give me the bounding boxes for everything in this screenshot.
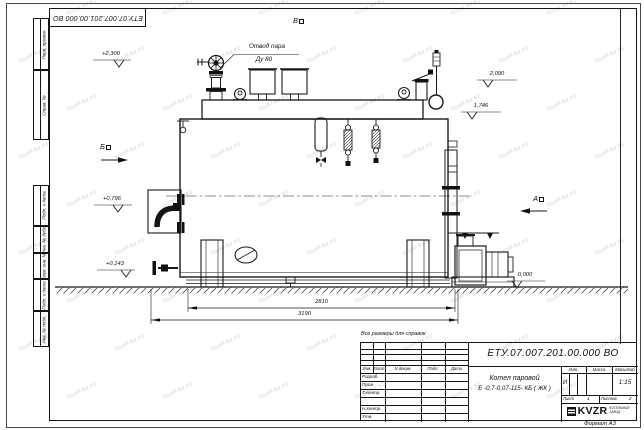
company-name: КОТЕЛЬНЫЙ ЗАВОД [609, 407, 629, 414]
sheet-label: Лист [563, 397, 574, 401]
view-mark-box-icon [299, 19, 304, 24]
col-ndoc: N докум. [385, 367, 421, 371]
view-mark-b: Б [100, 143, 111, 151]
steam-outlet-dn-label: Ду 80 [234, 57, 294, 63]
col-izm: Изм. [361, 367, 373, 371]
elevation-plus0143: +0,143 [95, 262, 135, 268]
scale-value: 1:15 [612, 380, 638, 387]
logo-text: KVZR [578, 405, 608, 417]
drawing-sheet: kotel-kv.kzkotel-kv.kzkotel-kv.kzkotel-k… [0, 0, 644, 430]
sheet-value: 1 [587, 397, 590, 402]
col-data: Дата [445, 367, 468, 371]
elevation-plus2300: +2,300 [91, 52, 131, 58]
lit-value: И [561, 380, 569, 386]
sheets-value: 2 [629, 397, 632, 402]
format-note: Формат А3 [570, 422, 630, 428]
view-mark-box-icon [539, 197, 544, 202]
product-name-line2: Е -0,7-0,07-115- КБ ( ЖК ) [468, 386, 561, 392]
view-mark-v: В [293, 17, 304, 25]
lit-label: Лит. [561, 368, 586, 372]
mass-label: Масса [586, 368, 612, 372]
drawing-geometry [55, 50, 628, 324]
dimension-3190: 3190 [287, 312, 322, 318]
product-name-line1: Котел паровой [468, 375, 561, 382]
col-podp: Подп. [421, 367, 445, 371]
logo-stripes-icon [567, 407, 576, 416]
elevation-plus0796: +0,796 [92, 197, 132, 203]
elevation-2090: 2,090 [477, 72, 517, 78]
role-utv: Утв. [362, 415, 372, 420]
reference-note: Все размеры для справок [361, 332, 426, 337]
role-nkontr: Н.контр. [362, 407, 381, 412]
dimension-2810: 2810 [304, 300, 339, 306]
doc-number: ЕТУ.07.007.201.00.000 ВО [468, 349, 638, 359]
elevation-1746: 1,746 [461, 104, 501, 110]
view-mark-a: А [533, 195, 544, 203]
col-list: Лист [373, 367, 385, 371]
role-razrab: Разраб. [362, 375, 379, 380]
scale-label: Масштаб [612, 368, 638, 372]
company-logo: KVZR КОТЕЛЬНЫЙ ЗАВОД [561, 403, 635, 419]
title-block: Изм. Лист N докум. Подп. Дата Разраб. Пр… [360, 342, 637, 421]
sheets-label: Листов [601, 397, 617, 401]
role-prov: Пров. [362, 383, 374, 388]
role-tkontr: Т.контр. [362, 391, 381, 396]
steam-outlet-label: Отвод пара [234, 44, 300, 50]
elevation-zero: 0,000 [505, 273, 545, 279]
view-mark-box-icon [106, 145, 111, 150]
